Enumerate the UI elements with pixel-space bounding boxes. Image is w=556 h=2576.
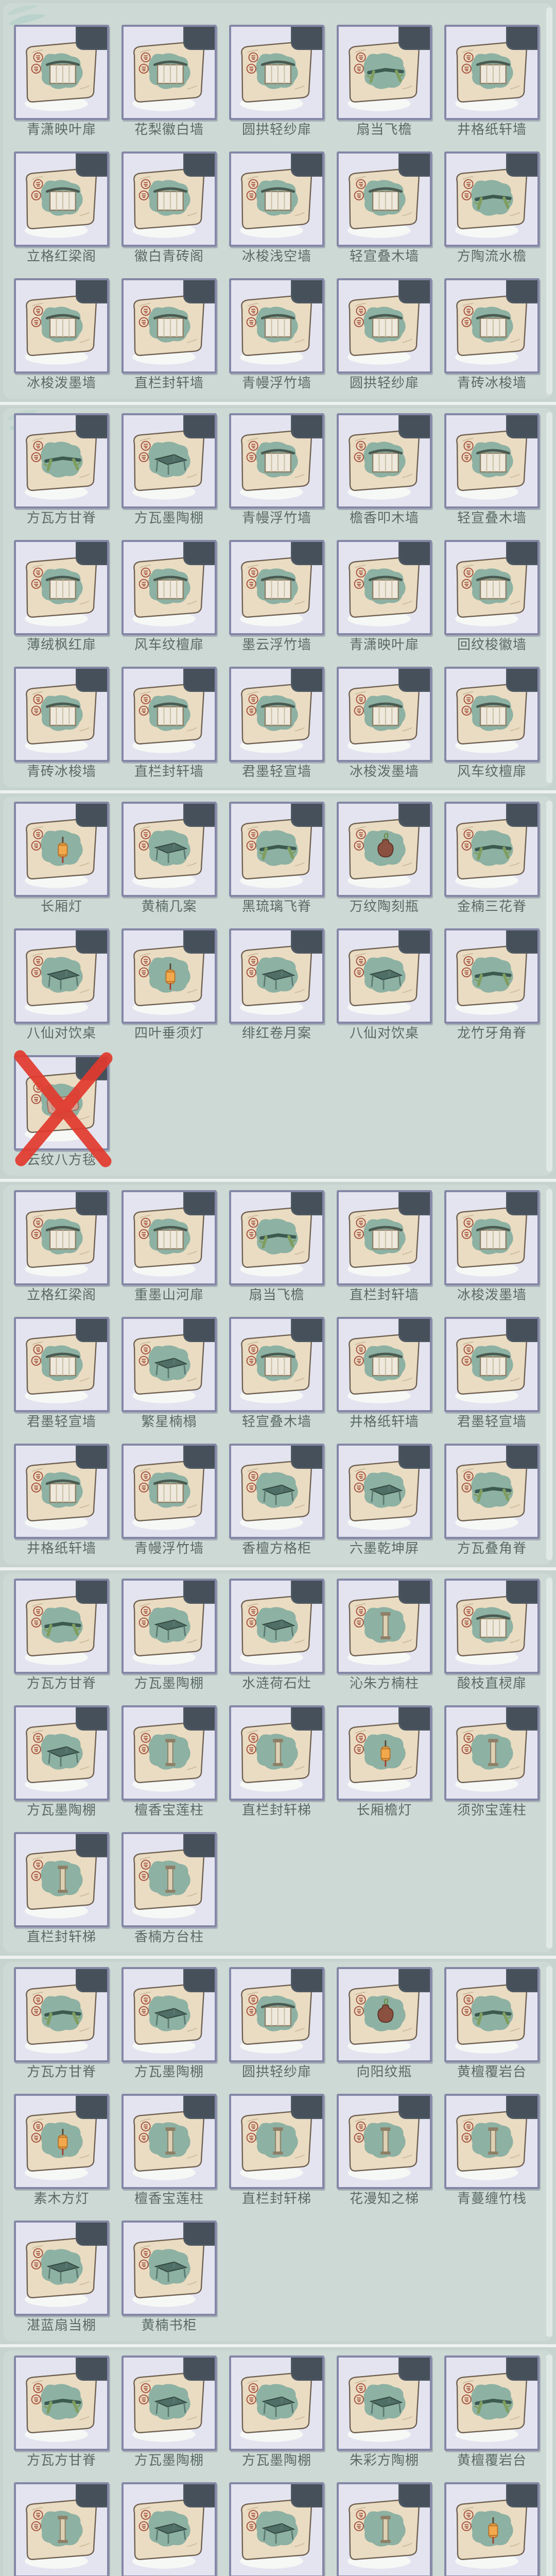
item-card[interactable]: 轻宣叠木墙 bbox=[229, 1317, 324, 1429]
item-card[interactable]: 黄楠书柜 bbox=[121, 2221, 217, 2333]
item-thumbnail bbox=[121, 667, 217, 762]
item-thumbnail bbox=[14, 540, 109, 635]
corner-badge bbox=[76, 2484, 108, 2507]
item-name: 方瓦墨陶棚 bbox=[121, 2453, 217, 2468]
item-card[interactable]: 万纹陶刻瓶 bbox=[337, 802, 432, 914]
item-card[interactable]: 黑琉璃飞脊 bbox=[229, 802, 324, 914]
item-card[interactable]: 檀香宝莲柱 bbox=[121, 2094, 217, 2206]
item-name: 青幔浮竹墙 bbox=[121, 1541, 217, 1556]
item-thumbnail bbox=[337, 2482, 432, 2576]
item-thumbnail bbox=[121, 1190, 217, 1285]
item-card[interactable]: 立格红梁阁 bbox=[14, 1190, 109, 1302]
item-thumbnail bbox=[121, 2355, 217, 2451]
corner-badge bbox=[183, 541, 215, 565]
corner-badge bbox=[76, 1707, 108, 1731]
item-name: 龙竹牙角脊 bbox=[444, 1026, 540, 1041]
item-card[interactable]: 六墨乾坤屏 bbox=[337, 1444, 432, 1556]
item-thumbnail bbox=[337, 540, 432, 635]
item-name: 方瓦叠角脊 bbox=[444, 1541, 540, 1556]
corner-badge bbox=[76, 1057, 108, 1080]
corner-badge bbox=[183, 415, 215, 438]
item-card[interactable]: 墨云浮竹墙 bbox=[229, 540, 324, 652]
item-thumbnail bbox=[121, 151, 217, 247]
item-card[interactable]: 方瓦墨陶棚 bbox=[121, 1967, 217, 2079]
corner-badge bbox=[183, 153, 215, 177]
item-thumbnail bbox=[14, 278, 109, 374]
item-card[interactable]: 冰梭浅空墙 bbox=[229, 151, 324, 264]
corner-badge bbox=[398, 1318, 430, 1342]
item-row: 冰梭泼墨墙直栏封轩墙青幔浮竹墙圆拱轻纱扉青砖冰梭墙 bbox=[0, 278, 556, 391]
item-name: 徽白青砖阁 bbox=[121, 249, 217, 264]
item-row: 素木方灯檀香宝莲柱直栏封轩梯花漫知之梯青蔓缠竹栈 bbox=[0, 2094, 556, 2206]
corner-badge bbox=[76, 541, 108, 565]
item-card[interactable]: 直竹纱磨榻 bbox=[229, 2482, 324, 2576]
item-thumbnail bbox=[121, 2094, 217, 2189]
item-thumbnail bbox=[337, 1444, 432, 1539]
item-name: 君墨轻宣墙 bbox=[444, 1415, 540, 1429]
item-card[interactable]: 方瓦墨陶棚 bbox=[121, 413, 217, 526]
corner-badge bbox=[76, 1318, 108, 1342]
item-thumbnail bbox=[229, 1967, 324, 2062]
corner-badge bbox=[506, 1318, 538, 1342]
item-name: 扇当飞檐 bbox=[229, 1288, 324, 1302]
item-thumbnail bbox=[337, 1317, 432, 1412]
item-card[interactable]: 繁星楠榻 bbox=[121, 1317, 217, 1429]
corner-badge bbox=[183, 2357, 215, 2381]
item-card[interactable]: 井格纸轩墙 bbox=[444, 25, 540, 137]
corner-badge bbox=[506, 1445, 538, 1469]
item-card[interactable]: 金楠三花脊 bbox=[444, 802, 540, 914]
corner-badge bbox=[506, 2095, 538, 2119]
item-row: 长厢灯黄楠几案黑琉璃飞脊万纹陶刻瓶金楠三花脊 bbox=[0, 802, 556, 914]
item-thumbnail bbox=[444, 540, 540, 635]
item-thumbnail bbox=[444, 802, 540, 897]
item-thumbnail bbox=[14, 1967, 109, 2062]
item-card[interactable]: 立格红梁阁 bbox=[14, 151, 109, 264]
item-card[interactable]: 香檀方格柜 bbox=[229, 1444, 324, 1556]
item-card[interactable]: 风车纹檀扉 bbox=[444, 667, 540, 779]
corner-badge bbox=[398, 1192, 430, 1215]
corner-badge bbox=[76, 1969, 108, 1992]
item-thumbnail bbox=[14, 2094, 109, 2189]
item-name: 直栏封轩墙 bbox=[121, 376, 217, 391]
corner-badge bbox=[183, 2484, 215, 2507]
corner-badge bbox=[398, 1445, 430, 1469]
corner-badge bbox=[506, 1707, 538, 1731]
item-row: 井格纸轩墙青幔浮竹墙香檀方格柜六墨乾坤屏方瓦叠角脊 bbox=[0, 1444, 556, 1556]
corner-badge bbox=[76, 1834, 108, 1857]
item-thumbnail bbox=[444, 2094, 540, 2189]
item-thumbnail bbox=[337, 25, 432, 120]
item-name: 长厢灯 bbox=[14, 900, 109, 914]
corner-badge bbox=[398, 2095, 430, 2119]
corner-badge bbox=[398, 803, 430, 827]
item-card[interactable]: 冰梭泼墨墙 bbox=[337, 667, 432, 779]
item-thumbnail bbox=[121, 2221, 217, 2316]
item-row: 方瓦方甘脊方瓦墨陶棚圆拱轻纱扉向阳纹瓶黄檀覆岩台 bbox=[0, 1967, 556, 2079]
corner-badge bbox=[506, 1192, 538, 1215]
item-card[interactable]: 风车纹檀扉 bbox=[121, 540, 217, 652]
item-name: 立格红梁阁 bbox=[14, 249, 109, 264]
section-5: 方瓦方甘脊方瓦墨陶棚水涟荷石灶沁朱方楠柱酸枝直棂扉方瓦墨陶棚檀香宝莲柱直栏封轩梯… bbox=[0, 1570, 556, 1956]
corner-badge bbox=[291, 2095, 323, 2119]
corner-badge bbox=[291, 668, 323, 692]
item-card[interactable]: 直栏封轩梯 bbox=[14, 1832, 109, 1944]
item-card[interactable]: 方瓦方甘脊 bbox=[14, 1967, 109, 2079]
item-card[interactable]: 圆拱轻纱扉 bbox=[229, 1967, 324, 2079]
corner-badge bbox=[506, 415, 538, 438]
item-thumbnail bbox=[444, 1705, 540, 1801]
item-thumbnail bbox=[121, 928, 217, 1024]
item-name: 黄檀覆岩台 bbox=[444, 2065, 540, 2079]
item-card[interactable]: 圆拱轻纱扉 bbox=[337, 278, 432, 391]
item-row: 直栏封轩梯香楠方台柱 bbox=[0, 1832, 556, 1944]
item-card[interactable]: 香楠方台柱 bbox=[121, 1832, 217, 1944]
item-thumbnail bbox=[121, 1967, 217, 2062]
corner-badge bbox=[76, 2357, 108, 2381]
item-card[interactable]: 花漫知之梯 bbox=[337, 2094, 432, 2206]
corner-badge bbox=[76, 1192, 108, 1215]
item-name: 须弥宝莲柱 bbox=[444, 1803, 540, 1818]
item-thumbnail bbox=[337, 2094, 432, 2189]
item-thumbnail bbox=[229, 1190, 324, 1285]
item-row: 方瓦方甘脊方瓦墨陶棚青幔浮竹墙檐香叩木墙轻宣叠木墙 bbox=[0, 413, 556, 526]
item-name: 青幔浮竹墙 bbox=[229, 376, 324, 391]
corner-badge bbox=[506, 153, 538, 177]
item-card[interactable]: 酸枝直棂扉 bbox=[444, 1579, 540, 1691]
item-card[interactable]: 直栏封轩梯 bbox=[229, 1705, 324, 1818]
corner-badge bbox=[183, 1192, 215, 1215]
item-row: 云纹八方毯 bbox=[0, 1055, 556, 1167]
item-card[interactable]: 青幔浮竹墙 bbox=[229, 278, 324, 391]
item-name: 冰梭泼墨墙 bbox=[14, 376, 109, 391]
corner-badge bbox=[291, 1580, 323, 1604]
item-card[interactable]: 方瓦墨陶棚 bbox=[121, 1579, 217, 1691]
item-thumbnail bbox=[444, 25, 540, 120]
item-card[interactable]: 绯红卷月案 bbox=[229, 928, 324, 1041]
corner-badge bbox=[76, 1445, 108, 1469]
item-row: 立格红梁阁徽白青砖阁冰梭浅空墙轻宣叠木墙方陶流水檐 bbox=[0, 151, 556, 264]
item-card[interactable]: 长厢灯 bbox=[14, 802, 109, 914]
item-name: 方瓦方甘脊 bbox=[14, 511, 109, 526]
item-thumbnail bbox=[121, 1832, 217, 1927]
section-2: 方瓦方甘脊方瓦墨陶棚青幔浮竹墙檐香叩木墙轻宣叠木墙薄绒枫红扉风车纹檀扉墨云浮竹墙… bbox=[0, 405, 556, 790]
item-card[interactable]: 扇当飞檐 bbox=[229, 1190, 324, 1302]
item-card[interactable]: 黄檀覆岩台 bbox=[444, 1967, 540, 2079]
corner-badge bbox=[291, 153, 323, 177]
item-name: 八仙对饮桌 bbox=[14, 1026, 109, 1041]
item-name: 花漫知之梯 bbox=[337, 2192, 432, 2206]
item-name: 方瓦墨陶棚 bbox=[14, 1803, 109, 1818]
item-card[interactable]: 四叶垂须灯 bbox=[121, 928, 217, 1041]
item-card[interactable]: 方瓦方甘脊 bbox=[14, 1579, 109, 1691]
item-card[interactable]: 花梨徽白墙 bbox=[121, 25, 217, 137]
item-card[interactable]: 八仙对饮桌 bbox=[14, 928, 109, 1041]
corner-badge bbox=[76, 668, 108, 692]
item-name: 绯红卷月案 bbox=[229, 1026, 324, 1041]
item-name: 井格纸轩墙 bbox=[337, 1415, 432, 1429]
item-card[interactable]: 湛蓝扇当棚 bbox=[14, 2221, 109, 2333]
item-name: 墨云浮竹墙 bbox=[229, 638, 324, 652]
item-name: 黄楠几案 bbox=[121, 900, 217, 914]
item-card[interactable]: 黄楠几案 bbox=[121, 802, 217, 914]
item-name: 扇当飞檐 bbox=[337, 123, 432, 137]
item-name: 直栏封轩梯 bbox=[229, 1803, 324, 1818]
item-name: 方瓦方甘脊 bbox=[14, 1676, 109, 1691]
item-thumbnail bbox=[337, 278, 432, 374]
item-name: 直栏封轩墙 bbox=[337, 1288, 432, 1302]
corner-badge bbox=[76, 26, 108, 50]
corner-badge bbox=[76, 153, 108, 177]
item-thumbnail bbox=[337, 2355, 432, 2451]
item-thumbnail bbox=[14, 928, 109, 1024]
corner-badge bbox=[398, 1969, 430, 1992]
item-card[interactable]: 水涟荷石灶 bbox=[229, 1579, 324, 1691]
item-card[interactable]: 方瓦墨陶棚 bbox=[121, 2355, 217, 2468]
item-row: 方瓦墨陶棚檀香宝莲柱直栏封轩梯长厢檐灯须弥宝莲柱 bbox=[0, 1705, 556, 1818]
item-card[interactable]: 圆拱轻纱扉 bbox=[229, 25, 324, 137]
corner-badge bbox=[291, 541, 323, 565]
corner-badge bbox=[291, 280, 323, 303]
item-thumbnail bbox=[121, 1579, 217, 1674]
item-name: 轻宣叠木墙 bbox=[229, 1415, 324, 1429]
item-thumbnail bbox=[229, 667, 324, 762]
item-row: 青砖冰梭墙直栏封轩墙君墨轻宣墙冰梭泼墨墙风车纹檀扉 bbox=[0, 667, 556, 779]
item-name: 水涟荷石灶 bbox=[229, 1676, 324, 1691]
item-thumbnail bbox=[121, 278, 217, 374]
corner-badge bbox=[398, 930, 430, 954]
item-name: 回纹梭徽墙 bbox=[444, 638, 540, 652]
item-row: 君墨轻宣墙繁星楠榻轻宣叠木墙井格纸轩墙君墨轻宣墙 bbox=[0, 1317, 556, 1429]
corner-badge bbox=[183, 668, 215, 692]
corner-badge bbox=[398, 541, 430, 565]
item-name: 黄檀覆岩台 bbox=[444, 2453, 540, 2468]
item-name: 向阳纹瓶 bbox=[337, 2065, 432, 2079]
corner-badge bbox=[398, 153, 430, 177]
item-name: 檀香宝莲柱 bbox=[121, 2192, 217, 2206]
item-card[interactable]: 直栏封轩梯 bbox=[229, 2094, 324, 2206]
item-name: 繁星楠榻 bbox=[121, 1415, 217, 1429]
corner-badge bbox=[398, 2357, 430, 2381]
item-card[interactable]: 墨云梅龙梯 bbox=[337, 2482, 432, 2576]
item-row: 薄绒枫红扉风车纹檀扉墨云浮竹墙青潇映叶扉回纹梭徽墙 bbox=[0, 540, 556, 652]
item-card[interactable]: 君墨轻宣墙 bbox=[14, 1317, 109, 1429]
item-card[interactable]: 泼墨山水榻 bbox=[121, 2482, 217, 2576]
item-card[interactable]: 长厢檐灯 bbox=[337, 1705, 432, 1818]
item-name: 轻宣叠木墙 bbox=[444, 511, 540, 526]
corner-badge bbox=[506, 668, 538, 692]
item-row: 沁朱方楠柱泼墨山水榻直竹纱磨榻墨云梅龙梯玉坠枝檐灯 bbox=[0, 2482, 556, 2576]
item-card[interactable]: 方瓦方甘脊 bbox=[14, 2355, 109, 2468]
corner-badge bbox=[183, 280, 215, 303]
corner-badge bbox=[183, 1707, 215, 1731]
item-thumbnail bbox=[14, 1190, 109, 1285]
item-thumbnail bbox=[14, 2221, 109, 2316]
item-name: 风车纹檀扉 bbox=[444, 765, 540, 779]
item-card[interactable]: 朱彩方陶棚 bbox=[337, 2355, 432, 2468]
item-thumbnail bbox=[337, 1967, 432, 2062]
item-thumbnail bbox=[444, 1317, 540, 1412]
item-card[interactable]: 青潇映叶扉 bbox=[337, 540, 432, 652]
item-thumbnail bbox=[14, 1444, 109, 1539]
item-name: 冰梭泼墨墙 bbox=[337, 765, 432, 779]
item-card[interactable]: 轻宣叠木墙 bbox=[444, 413, 540, 526]
corner-badge bbox=[291, 1707, 323, 1731]
section-6: 方瓦方甘脊方瓦墨陶棚圆拱轻纱扉向阳纹瓶黄檀覆岩台素木方灯檀香宝莲柱直栏封轩梯花漫… bbox=[0, 1959, 556, 2344]
item-thumbnail bbox=[444, 928, 540, 1024]
item-name: 朱彩方陶棚 bbox=[337, 2453, 432, 2468]
corner-badge bbox=[398, 1707, 430, 1731]
item-thumbnail bbox=[229, 1579, 324, 1674]
item-card[interactable]: 向阳纹瓶 bbox=[337, 1967, 432, 2079]
item-row: 方瓦方甘脊方瓦墨陶棚方瓦墨陶棚朱彩方陶棚黄檀覆岩台 bbox=[0, 2355, 556, 2468]
corner-badge bbox=[76, 280, 108, 303]
item-thumbnail bbox=[444, 413, 540, 509]
item-card[interactable]: 玉坠枝檐灯 bbox=[444, 2482, 540, 2576]
corner-badge bbox=[183, 1580, 215, 1604]
item-card[interactable]: 龙竹牙角脊 bbox=[444, 928, 540, 1041]
item-card[interactable]: 方陶流水檐 bbox=[444, 151, 540, 264]
item-name: 黑琉璃飞脊 bbox=[229, 900, 324, 914]
item-thumbnail bbox=[337, 802, 432, 897]
item-card[interactable]: 云纹八方毯 bbox=[14, 1055, 109, 1167]
item-card[interactable]: 八仙对饮桌 bbox=[337, 928, 432, 1041]
item-thumbnail bbox=[229, 2094, 324, 2189]
item-name: 井格纸轩墙 bbox=[444, 123, 540, 137]
item-card[interactable]: 冰梭泼墨墙 bbox=[14, 278, 109, 391]
corner-badge bbox=[506, 803, 538, 827]
item-card[interactable]: 青幔浮竹墙 bbox=[121, 1444, 217, 1556]
item-card[interactable]: 方瓦叠角脊 bbox=[444, 1444, 540, 1556]
item-thumbnail bbox=[121, 2482, 217, 2576]
item-name: 素木方灯 bbox=[14, 2192, 109, 2206]
corner-badge bbox=[506, 930, 538, 954]
item-card[interactable]: 井格纸轩墙 bbox=[14, 1444, 109, 1556]
item-name: 方瓦墨陶棚 bbox=[229, 2453, 324, 2468]
collection-page: 青潇映叶扉花梨徽白墙圆拱轻纱扉扇当飞檐井格纸轩墙立格红梁阁徽白青砖阁冰梭浅空墙轻… bbox=[0, 0, 556, 2576]
item-name: 青砖冰梭墙 bbox=[444, 376, 540, 391]
corner-badge bbox=[183, 2095, 215, 2119]
item-card[interactable]: 须弥宝莲柱 bbox=[444, 1705, 540, 1818]
item-name: 檐香叩木墙 bbox=[337, 511, 432, 526]
item-thumbnail bbox=[14, 2482, 109, 2576]
item-thumbnail bbox=[444, 1579, 540, 1674]
item-thumbnail bbox=[337, 667, 432, 762]
corner-badge bbox=[183, 2222, 215, 2246]
item-thumbnail bbox=[121, 540, 217, 635]
item-name: 金楠三花脊 bbox=[444, 900, 540, 914]
item-card[interactable]: 轻宣叠木墙 bbox=[337, 151, 432, 264]
section-3: 长厢灯黄楠几案黑琉璃飞脊万纹陶刻瓶金楠三花脊八仙对饮桌四叶垂须灯绯红卷月案八仙对… bbox=[0, 793, 556, 1179]
item-thumbnail bbox=[337, 1190, 432, 1285]
item-row: 方瓦方甘脊方瓦墨陶棚水涟荷石灶沁朱方楠柱酸枝直棂扉 bbox=[0, 1579, 556, 1691]
corner-badge bbox=[506, 2484, 538, 2507]
item-thumbnail bbox=[444, 151, 540, 247]
item-card[interactable]: 檀香宝莲柱 bbox=[121, 1705, 217, 1818]
item-card[interactable]: 重墨山河扉 bbox=[121, 1190, 217, 1302]
item-card[interactable]: 井格纸轩墙 bbox=[337, 1317, 432, 1429]
corner-badge bbox=[398, 2484, 430, 2507]
item-name: 直栏封轩梯 bbox=[229, 2192, 324, 2206]
item-name: 青幔浮竹墙 bbox=[229, 511, 324, 526]
item-card[interactable]: 回纹梭徽墙 bbox=[444, 540, 540, 652]
item-card[interactable]: 薄绒枫红扉 bbox=[14, 540, 109, 652]
corner-badge bbox=[291, 803, 323, 827]
item-thumbnail bbox=[14, 2355, 109, 2451]
item-card[interactable]: 直栏封轩墙 bbox=[337, 1190, 432, 1302]
item-card[interactable]: 方瓦墨陶棚 bbox=[14, 1705, 109, 1818]
item-card[interactable]: 方瓦方甘脊 bbox=[14, 413, 109, 526]
item-thumbnail bbox=[14, 1832, 109, 1927]
item-thumbnail bbox=[444, 278, 540, 374]
item-name: 直栏封轩墙 bbox=[121, 765, 217, 779]
item-name: 圆拱轻纱扉 bbox=[337, 376, 432, 391]
item-name: 云纹八方毯 bbox=[14, 1153, 109, 1167]
item-thumbnail bbox=[444, 667, 540, 762]
item-card[interactable]: 君墨轻宣墙 bbox=[444, 1317, 540, 1429]
item-card[interactable]: 直栏封轩墙 bbox=[121, 278, 217, 391]
item-thumbnail bbox=[14, 25, 109, 120]
item-card[interactable]: 方瓦墨陶棚 bbox=[229, 2355, 324, 2468]
item-card[interactable]: 徽白青砖阁 bbox=[121, 151, 217, 264]
item-name: 青砖冰梭墙 bbox=[14, 765, 109, 779]
item-name: 方瓦墨陶棚 bbox=[121, 511, 217, 526]
corner-badge bbox=[183, 1318, 215, 1342]
corner-badge bbox=[291, 2484, 323, 2507]
item-card[interactable]: 青幔浮竹墙 bbox=[229, 413, 324, 526]
corner-badge bbox=[506, 26, 538, 50]
item-thumbnail bbox=[14, 667, 109, 762]
item-card[interactable]: 青砖冰梭墙 bbox=[14, 667, 109, 779]
item-thumbnail bbox=[121, 802, 217, 897]
item-card[interactable]: 冰梭泼墨墙 bbox=[444, 1190, 540, 1302]
item-card[interactable]: 扇当飞檐 bbox=[337, 25, 432, 137]
item-card[interactable]: 青蔓缠竹栈 bbox=[444, 2094, 540, 2206]
item-thumbnail bbox=[14, 802, 109, 897]
item-card[interactable]: 青砖冰梭墙 bbox=[444, 278, 540, 391]
item-card[interactable]: 君墨轻宣墙 bbox=[229, 667, 324, 779]
corner-badge bbox=[183, 930, 215, 954]
item-name: 直栏封轩梯 bbox=[14, 1930, 109, 1944]
item-card[interactable]: 黄檀覆岩台 bbox=[444, 2355, 540, 2468]
item-name: 香楠方台柱 bbox=[121, 1930, 217, 1944]
corner-badge bbox=[291, 1192, 323, 1215]
item-thumbnail bbox=[229, 1317, 324, 1412]
item-card[interactable]: 直栏封轩墙 bbox=[121, 667, 217, 779]
item-name: 香檀方格柜 bbox=[229, 1541, 324, 1556]
item-card[interactable]: 沁朱方楠柱 bbox=[14, 2482, 109, 2576]
corner-badge bbox=[291, 930, 323, 954]
item-thumbnail bbox=[14, 1705, 109, 1801]
item-name: 六墨乾坤屏 bbox=[337, 1541, 432, 1556]
item-thumbnail bbox=[444, 1190, 540, 1285]
item-name: 方瓦方甘脊 bbox=[14, 2453, 109, 2468]
item-thumbnail bbox=[121, 1444, 217, 1539]
corner-badge bbox=[506, 2357, 538, 2381]
item-name: 君墨轻宣墙 bbox=[229, 765, 324, 779]
item-name: 风车纹檀扉 bbox=[121, 638, 217, 652]
item-thumbnail bbox=[229, 540, 324, 635]
item-card[interactable]: 素木方灯 bbox=[14, 2094, 109, 2206]
item-thumbnail bbox=[444, 2355, 540, 2451]
item-card[interactable]: 沁朱方楠柱 bbox=[337, 1579, 432, 1691]
item-card[interactable]: 青潇映叶扉 bbox=[14, 25, 109, 137]
corner-badge bbox=[183, 803, 215, 827]
item-name: 长厢檐灯 bbox=[337, 1803, 432, 1818]
corner-badge bbox=[76, 803, 108, 827]
item-card[interactable]: 檐香叩木墙 bbox=[337, 413, 432, 526]
item-thumbnail bbox=[121, 1705, 217, 1801]
